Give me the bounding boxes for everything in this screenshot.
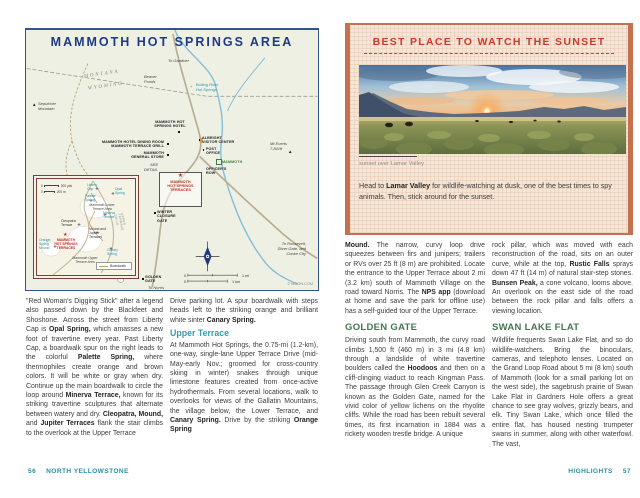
map-label-to-norris: To Norris — [148, 286, 164, 291]
inset-label-terraces: MAMMOTH HOT SPRINGS TERRACES — [53, 239, 79, 251]
inset-legend-label: Boardwalk — [110, 264, 126, 268]
page-right: BEST PLACE TO WATCH THE SUNSET — [345, 20, 633, 482]
map-label-boiling-river: Boiling River Hot Springs — [196, 83, 218, 93]
scale-km: 1 km — [232, 280, 240, 284]
main-road — [152, 34, 201, 287]
right-page-footer: HIGHLIGHTS57 — [568, 468, 631, 475]
spring-marker-icon: + — [190, 85, 192, 90]
inset-detail-map: 0 200 yds 0 200 m Liberty Cap Opal Sprin… — [33, 175, 139, 279]
feature-box-sunset: BEST PLACE TO WATCH THE SUNSET — [345, 23, 633, 235]
poi-marker — [203, 149, 205, 151]
paragraph: "Red Woman's Digging Stick" after a lege… — [26, 297, 163, 438]
right-column-2: rock pillar, which was moved with each r… — [492, 241, 633, 449]
poi-marker — [142, 278, 144, 280]
inset-scale-bar — [44, 185, 59, 188]
map-label-to-gardiner: To Gardiner — [168, 59, 189, 64]
map-mammoth-hot-springs-area: MAMMOTH HOT SPRINGS AREA To Gardiner MON… — [25, 28, 319, 291]
mountain-peak-icon: ▲ — [32, 103, 36, 108]
inset-label-cleopatra: Cleopatra Terrace — [61, 220, 76, 228]
inset-label-opal-spring: Opal Spring — [115, 188, 125, 196]
map-credit: © MOON.COM — [287, 282, 313, 286]
paragraph: Drive parking lot. A spur boardwalk with… — [170, 297, 318, 325]
map-label-visitor-center: ALBRIGHT VISITOR CENTER — [202, 136, 234, 145]
mountain-peak-icon-2: ▲ — [288, 150, 292, 155]
right-column-1: Mound. The narrow, curvy loop drive sque… — [345, 241, 485, 440]
map-label-golden-gate: GOLDEN GATE — [145, 275, 161, 284]
state-boundary-line — [27, 69, 318, 97]
map-label-general-store: MAMMOTH GENERAL STORE — [121, 151, 164, 160]
map-label-see-detail: SEE DETAIL — [136, 163, 158, 173]
inset-label-lower-area: Mammoth Lower Terrace Area — [81, 204, 123, 212]
page-number: 56 — [28, 468, 36, 475]
photo-lamar-valley-sunset — [359, 65, 626, 154]
star-icon: ★ — [160, 173, 201, 180]
heading-golden-gate: GOLDEN GATE — [345, 322, 485, 333]
paragraph: At Mammoth Hot Springs, the 0.75-mi (1.2… — [170, 341, 318, 435]
paragraph: rock pillar, which was moved with each r… — [492, 241, 633, 316]
trail-line — [70, 64, 105, 193]
inset-legend: Boardwalk — [96, 262, 132, 270]
scale-bars — [188, 274, 237, 283]
section-label: NORTH YELLOWSTONE — [46, 468, 129, 475]
map-label-beaver-ponds: Beaver Ponds — [144, 75, 157, 85]
inset-label-orange-spring: Orange Spring Mound — [39, 239, 50, 251]
map-label-sepulcher: Sepulcher Mountain — [38, 102, 56, 112]
poi-marker — [178, 131, 180, 133]
map-label-hotel: MAMMOTH HOT SPRINGS HOTEL — [144, 120, 196, 129]
river-tributary — [227, 58, 265, 111]
book-spread: MAMMOTH HOT SPRINGS AREA To Gardiner MON… — [0, 0, 640, 498]
map-label-dining: MAMMOTH HOTEL DINING ROOM MAMMOTH TERRAC… — [84, 140, 164, 149]
poi-marker — [199, 139, 201, 141]
inset-scale-zero: 0 — [41, 184, 43, 188]
map-label-to-roosevelt: To Roosevelt, Silver Gate, and Cooke Cit… — [248, 242, 306, 256]
inset-scale-bar-2 — [44, 191, 55, 194]
poi-marker — [167, 154, 169, 156]
map-label-officers-row: OFFICER'S ROW — [206, 167, 226, 176]
feature-intro: Head to Lamar Valley for wildlife-watchi… — [359, 181, 627, 202]
map-label-post-office: POST OFFICE — [206, 147, 220, 156]
left-column-1: "Red Woman's Digging Stick" after a lege… — [26, 297, 163, 438]
dashed-divider — [364, 53, 614, 54]
map-title: MAMMOTH HOT SPRINGS AREA — [26, 35, 318, 49]
map-label-mt-everts: Mt Everts 7,841ft — [270, 142, 287, 152]
photo-credit-rule — [359, 156, 417, 157]
heading-swan-lake-flat: SWAN LAKE FLAT — [492, 322, 633, 333]
inset-scale-zero-2: 0 — [41, 190, 43, 194]
left-column-2: Drive parking lot. A spur boardwalk with… — [170, 297, 318, 435]
page-number: 57 — [623, 468, 631, 475]
left-page-footer: 56NORTH YELLOWSTONE — [28, 468, 129, 475]
detail-extent-rect: ★ MAMMOTH HOT SPRINGS TERRACES — [159, 172, 202, 207]
map-label-terraces: MAMMOTH HOT SPRINGS TERRACES — [160, 180, 201, 193]
scale-mi: 1 mi — [242, 274, 249, 278]
compass-rose-icon — [196, 242, 220, 272]
paragraph: Mound. The narrow, curvy loop drive sque… — [345, 241, 485, 316]
scale-zero: 0 — [184, 274, 186, 278]
poi-marker — [154, 212, 156, 214]
heading-upper-terrace: Upper Terrace — [170, 328, 318, 339]
inset-scale-m: 200 m — [57, 190, 66, 194]
map-label-winter-gate: WINTER CLOSURE GATE — [157, 210, 176, 223]
paragraph: Driving south from Mammoth, the curvy ro… — [345, 336, 485, 439]
inset-label-palette-spring: Palette Spring — [85, 195, 96, 203]
inset-label-canary: Canary Spring — [107, 249, 118, 257]
scale-zero-2: 0 — [184, 280, 186, 284]
map-label-mammoth: MAMMOTH — [222, 160, 242, 164]
section-label: HIGHLIGHTS — [568, 468, 613, 475]
inset-scale-yds: 200 yds — [61, 184, 72, 188]
page-left: MAMMOTH HOT SPRINGS AREA To Gardiner MON… — [20, 20, 320, 482]
inset-label-mound-jupiter: Mound and Jupiter Terraces — [89, 228, 106, 240]
feature-title: BEST PLACE TO WATCH THE SUNSET — [350, 36, 628, 48]
boardwalk-line-icon — [99, 266, 108, 267]
paragraph: Wildlife frequents Swan Lake Flat, and s… — [492, 336, 633, 449]
inset-label-upper-drive: UPPER TERRACE DRIVE — [113, 213, 127, 232]
poi-marker — [167, 143, 169, 145]
photo-caption: sunset over Lamar Valley — [359, 161, 424, 167]
inset-label-liberty-cap: Liberty Cap — [87, 184, 97, 192]
